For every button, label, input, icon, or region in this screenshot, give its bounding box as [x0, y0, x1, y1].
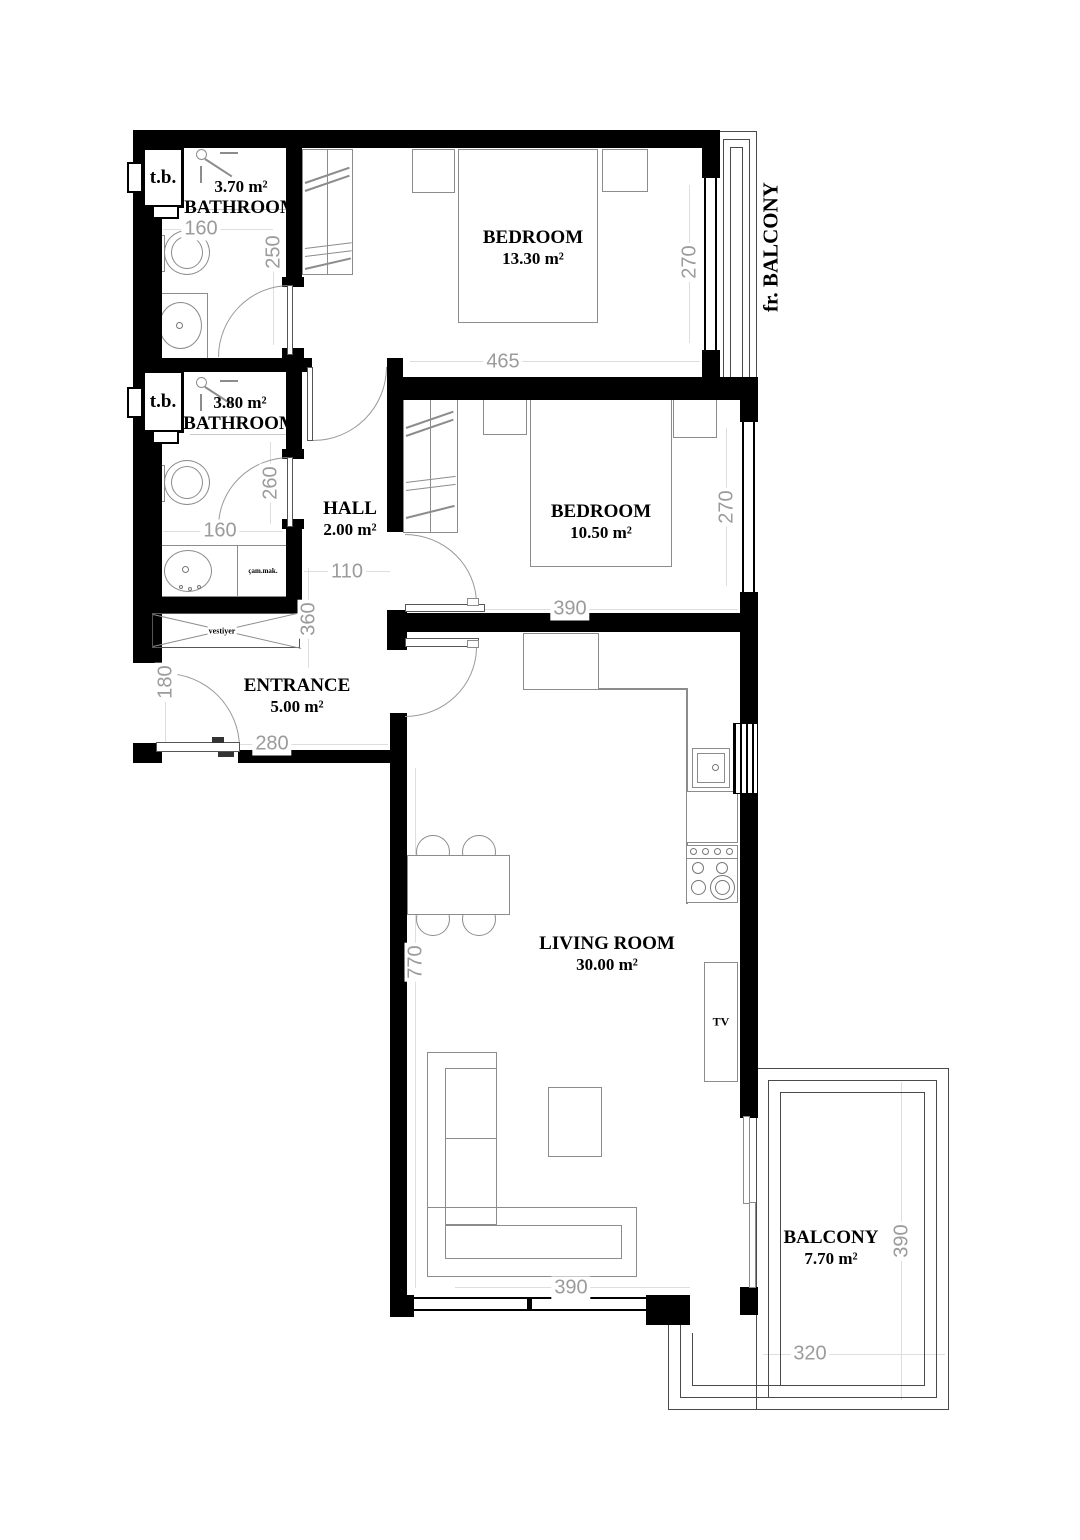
room-label-bedroom1: BEDROOM 13.30 m²	[483, 227, 583, 269]
wall	[702, 130, 720, 178]
dimension: 270	[679, 242, 702, 281]
wall	[390, 1295, 414, 1317]
door-hardware	[218, 752, 234, 757]
room-label-hall: HALL 2.00 m²	[323, 498, 377, 540]
door-stop	[467, 640, 479, 648]
sink-drain	[712, 764, 719, 771]
wall	[390, 713, 407, 763]
stove-burner	[691, 880, 706, 895]
sink-drain	[182, 566, 189, 573]
stove-burner	[692, 862, 704, 874]
nightstand	[412, 149, 455, 193]
room-label-bathroom1: 3.70 m² BATHROOM	[184, 177, 298, 219]
stove-knob	[702, 848, 709, 855]
dimension: 770	[405, 942, 428, 981]
light-tick	[220, 152, 238, 154]
shaft-duct	[152, 430, 179, 444]
room-label-living-room: LIVING ROOM 30.00 m²	[539, 933, 675, 975]
wall	[387, 377, 758, 400]
coat-closet-label: vestiyer	[208, 627, 237, 636]
room-area: 30.00 m²	[539, 955, 675, 975]
french-balcony-railing	[730, 147, 743, 381]
room-label-french-balcony: fr. BALCONY	[759, 182, 784, 312]
room-name: LIVING ROOM	[539, 933, 675, 955]
room-label-bathroom2: 3.80 m² BATHROOM	[183, 393, 297, 435]
wall	[740, 1287, 758, 1315]
dishwasher	[686, 791, 738, 843]
shaft-label: t.b.	[150, 167, 176, 189]
room-name: BEDROOM	[551, 501, 651, 523]
dimension: 320	[790, 1343, 829, 1366]
wall	[387, 400, 403, 532]
stove-knob	[690, 848, 697, 855]
toilet-bowl-inner	[171, 236, 203, 269]
stove-knob	[726, 848, 733, 855]
room-area: 7.70 m²	[783, 1249, 878, 1269]
room-name: HALL	[323, 498, 377, 520]
door-swing-arc	[405, 647, 477, 717]
entrance-door-leaf	[156, 742, 240, 752]
wall	[646, 1295, 690, 1325]
stove-knob	[714, 848, 721, 855]
balcony-railing	[692, 1333, 780, 1386]
dimension: 260	[260, 463, 283, 502]
door-leaf	[287, 285, 293, 355]
door-swing-arc	[218, 285, 290, 357]
wall	[152, 597, 302, 613]
shaft-duct	[127, 387, 143, 418]
washing-machine-label: çam.mak.	[247, 567, 278, 575]
fridge	[523, 633, 599, 690]
room-label-balcony: BALCONY 7.70 m²	[783, 1227, 878, 1269]
shaft-box: t.b.	[142, 370, 184, 433]
dimension: 390	[891, 1221, 914, 1260]
room-name: BATHROOM	[184, 197, 298, 219]
insulated-wall-hatch	[733, 723, 758, 794]
room-area: 3.70 m²	[184, 177, 298, 197]
shaft-label: t.b.	[150, 391, 176, 413]
sliding-door-panel	[743, 1116, 750, 1204]
room-area: 13.30 m²	[483, 249, 583, 269]
sofa-seat	[445, 1068, 497, 1225]
counter-divider	[237, 546, 238, 596]
light-tick	[204, 158, 232, 177]
wardrobe-door-line	[327, 150, 328, 274]
window	[742, 422, 755, 592]
door-leaf	[307, 367, 313, 441]
room-area: 5.00 m²	[244, 697, 351, 717]
room-label-bedroom2: BEDROOM 10.50 m²	[551, 501, 651, 543]
room-area: 2.00 m²	[323, 520, 377, 540]
coffee-table	[548, 1087, 602, 1157]
nightstand	[602, 149, 648, 192]
door-leaf	[287, 457, 293, 527]
dim-guide	[460, 609, 738, 610]
wall	[740, 380, 758, 422]
door-hardware	[212, 737, 224, 743]
wall	[740, 794, 758, 1062]
dimension: 160	[200, 520, 239, 543]
dimension: 360	[298, 599, 321, 638]
stove-burner-large-inner	[715, 880, 730, 895]
dimension: 180	[155, 662, 178, 701]
dimension: 390	[550, 598, 589, 621]
dimension: 110	[328, 561, 366, 584]
tap-dot	[197, 585, 201, 589]
wall	[740, 592, 758, 723]
dimension: 270	[716, 487, 739, 526]
floor-plan: t.b. t.b. 3.70 m² BATHROOM BEDROOM 13.30…	[0, 0, 1080, 1540]
room-name: BALCONY	[783, 1227, 878, 1249]
wall	[740, 1062, 758, 1118]
dimension: 160	[181, 218, 220, 241]
tap-dot	[188, 587, 192, 591]
shaft-duct	[127, 162, 143, 193]
toilet-bowl-inner	[171, 466, 203, 499]
dining-table	[407, 855, 510, 915]
tap-dot	[179, 585, 183, 589]
sofa-seat	[445, 1225, 622, 1259]
room-area: 10.50 m²	[551, 523, 651, 543]
dimension: 280	[252, 733, 291, 756]
sink-drain	[176, 322, 183, 329]
shaft-duct	[152, 205, 179, 219]
dimension: 465	[483, 351, 522, 374]
window-mullion	[527, 1297, 532, 1311]
stove-line	[687, 858, 737, 859]
sliding-door-panel	[749, 1202, 756, 1288]
door-swing-arc	[405, 534, 477, 604]
window	[704, 178, 717, 350]
shaft-box: t.b.	[142, 147, 184, 208]
wall	[133, 750, 158, 763]
stove-burner	[716, 862, 728, 874]
wall	[702, 350, 720, 380]
wall	[135, 130, 720, 148]
wall	[390, 750, 407, 1317]
dimension: 250	[263, 232, 286, 271]
sofa-cushion-line	[445, 1138, 497, 1139]
room-name: ENTRANCE	[244, 675, 351, 697]
door-stop	[467, 598, 479, 606]
dimension: 390	[551, 1277, 590, 1300]
room-area: 3.80 m²	[183, 393, 297, 413]
tv-label: TV	[712, 1015, 731, 1030]
room-label-entrance: ENTRANCE 5.00 m²	[244, 675, 351, 717]
room-name: BEDROOM	[483, 227, 583, 249]
kitchen-sink-inner	[697, 753, 725, 783]
kitchen-counter-edge	[599, 688, 687, 690]
dim-guide	[410, 361, 700, 362]
door-swing-arc	[313, 367, 387, 441]
light-tick	[220, 380, 238, 382]
room-name: BATHROOM	[183, 413, 297, 435]
